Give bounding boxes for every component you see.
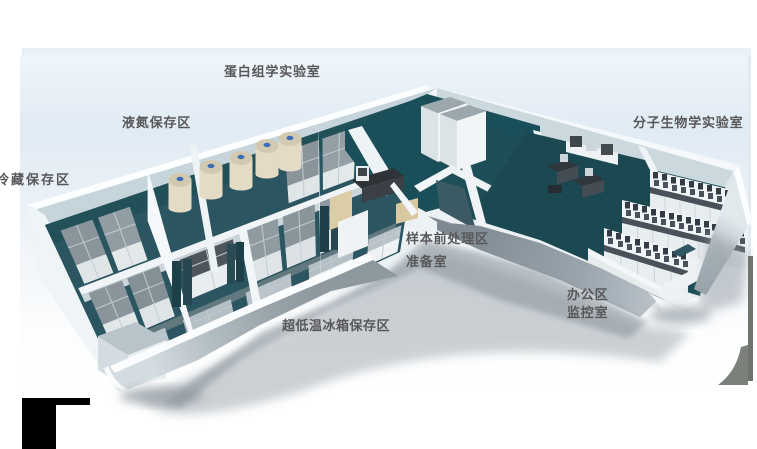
svg-text:监控室: 监控室 [567,305,608,320]
svg-text:液氮保存区: 液氮保存区 [122,115,191,130]
svg-text:准备室: 准备室 [406,254,447,269]
svg-text:分子生物学实验室: 分子生物学实验室 [633,115,743,130]
svg-text:超低温冰箱保存区: 超低温冰箱保存区 [282,318,390,333]
svg-text:蛋白组学实验室: 蛋白组学实验室 [224,64,321,79]
svg-text:办公区: 办公区 [567,287,608,302]
svg-text:样本前处理区: 样本前处理区 [406,231,489,246]
svg-text:冷藏保存区: 冷藏保存区 [0,172,71,187]
